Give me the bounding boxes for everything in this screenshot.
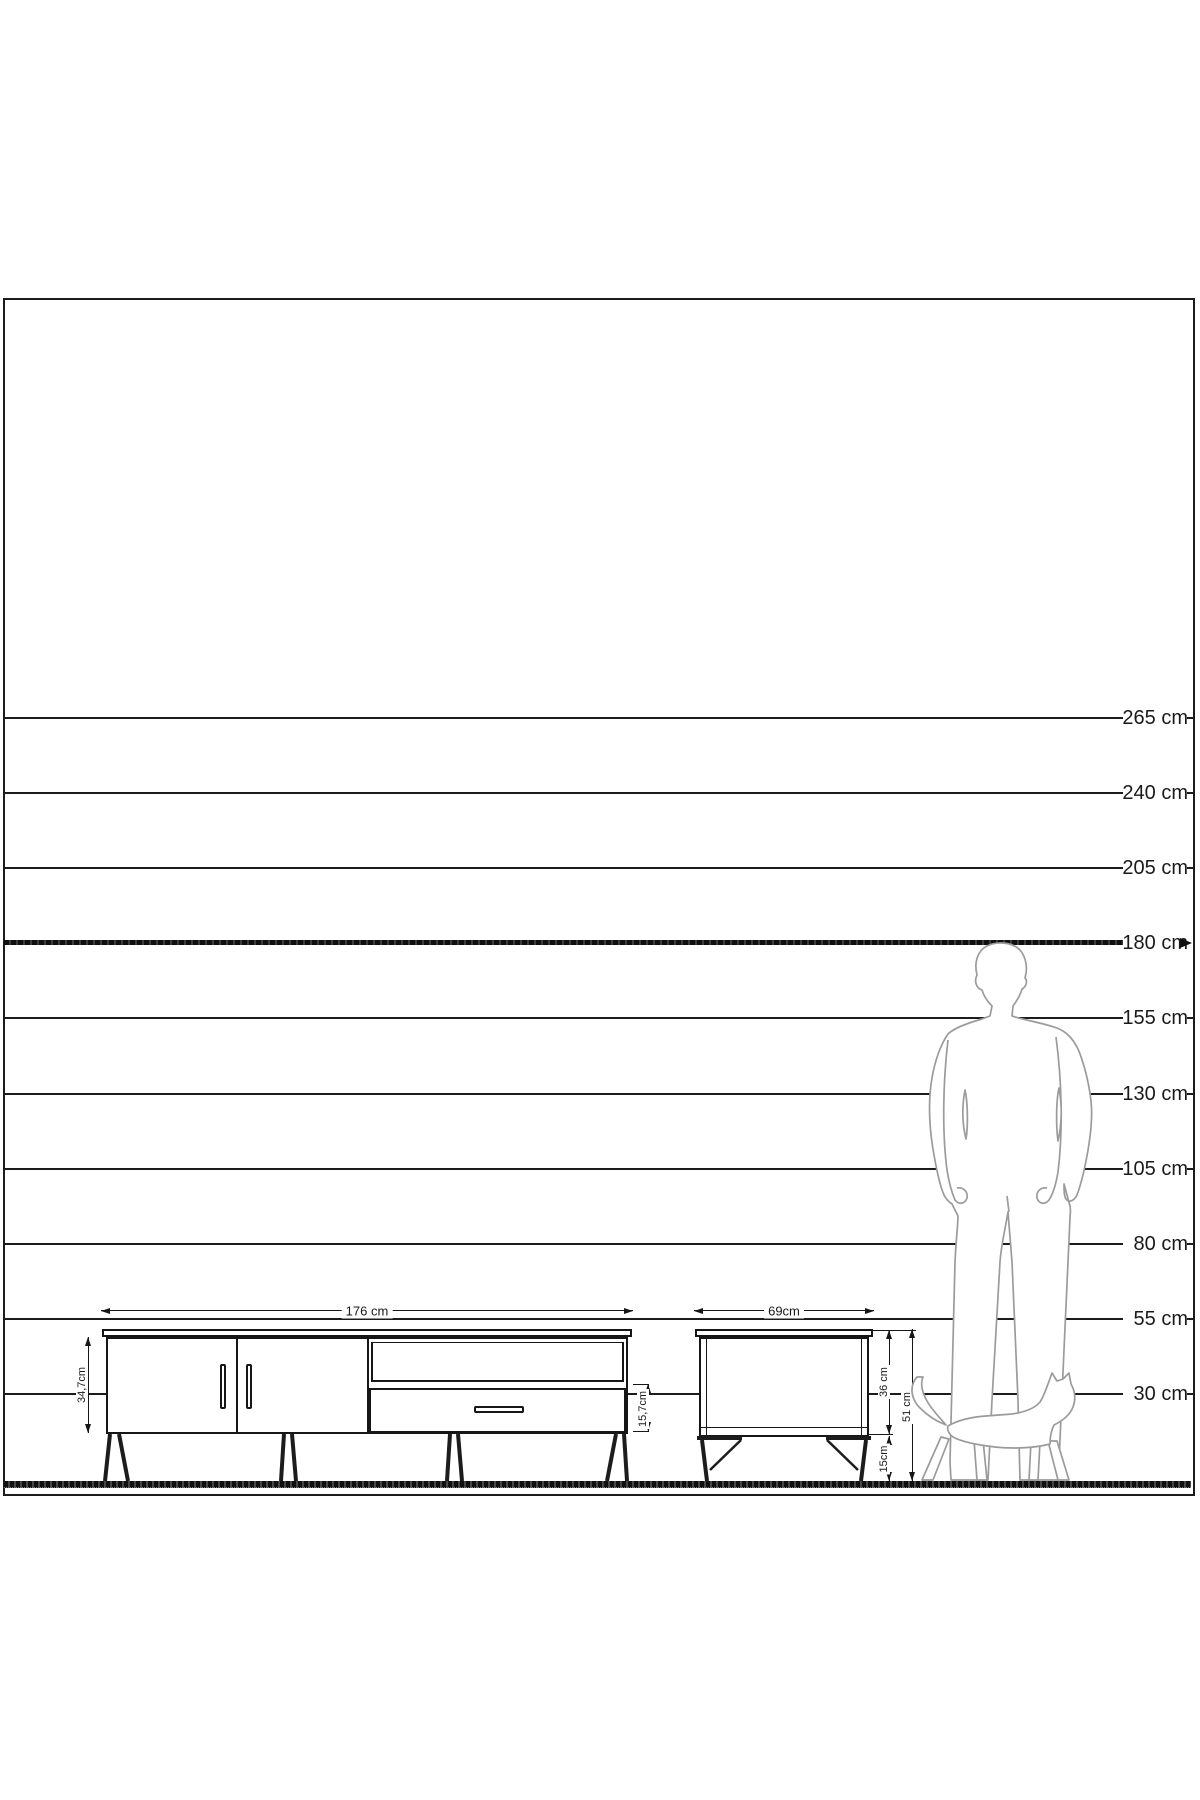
tv-stand-drawer-label: 15,7cm <box>637 1389 649 1429</box>
tv-stand-body <box>106 1337 628 1434</box>
scale-end-arrow <box>1180 938 1192 948</box>
side-table-body-height-label: 36 cm <box>878 1365 890 1399</box>
side-table-legs <box>693 1435 875 1483</box>
tv-stand-left-door-handle <box>220 1364 226 1409</box>
cat-silhouette-icon <box>900 1345 1090 1485</box>
scale-end-dash <box>1187 1017 1195 1019</box>
scale-end-dash <box>1187 1318 1195 1320</box>
side-table-body <box>699 1337 869 1437</box>
scale-end-dash <box>1187 1168 1195 1170</box>
side-table-top-panel <box>695 1329 873 1337</box>
tv-stand-height-label: 34,7cm <box>76 1365 88 1405</box>
tv-stand-width-label: 176 cm <box>342 1304 393 1319</box>
tv-stand-open-shelf <box>371 1342 624 1382</box>
scale-end-dash <box>1187 1093 1195 1095</box>
scale-label: 205 cm <box>1118 856 1188 880</box>
scale-label: 130 cm <box>1118 1082 1188 1106</box>
side-table-leg-height-label: 15cm <box>878 1444 890 1475</box>
tv-stand-drawer-handle <box>474 1406 524 1413</box>
scale-label: 240 cm <box>1118 781 1188 805</box>
scale-label: 55 cm <box>1118 1307 1188 1331</box>
tv-stand-right-door-handle <box>246 1364 252 1409</box>
scale-end-dash <box>1187 1393 1195 1395</box>
tv-stand-door-divider <box>236 1339 238 1432</box>
scale-label: 80 cm <box>1118 1232 1188 1256</box>
scale-label: 30 cm <box>1118 1382 1188 1406</box>
scale-end-dash <box>1187 717 1195 719</box>
scale-line <box>4 867 1123 869</box>
side-table-width-label: 69cm <box>764 1304 804 1319</box>
scale-label: 105 cm <box>1118 1157 1188 1181</box>
scale-line <box>4 792 1123 794</box>
scale-end-dash <box>1187 1243 1195 1245</box>
ground-line <box>4 1481 1191 1488</box>
scale-line <box>4 717 1123 719</box>
scale-label: 180 cm <box>1118 931 1188 955</box>
scale-end-dash <box>1187 792 1195 794</box>
tv-stand-drawer <box>369 1388 626 1433</box>
tv-stand-top-panel <box>102 1329 632 1337</box>
diagram-canvas: 265 cm240 cm205 cm180 cm155 cm130 cm105 … <box>0 0 1200 1800</box>
scale-label: 155 cm <box>1118 1006 1188 1030</box>
scale-label: 265 cm <box>1118 706 1188 730</box>
scale-end-dash <box>1187 867 1195 869</box>
tv-stand-legs <box>98 1433 634 1483</box>
